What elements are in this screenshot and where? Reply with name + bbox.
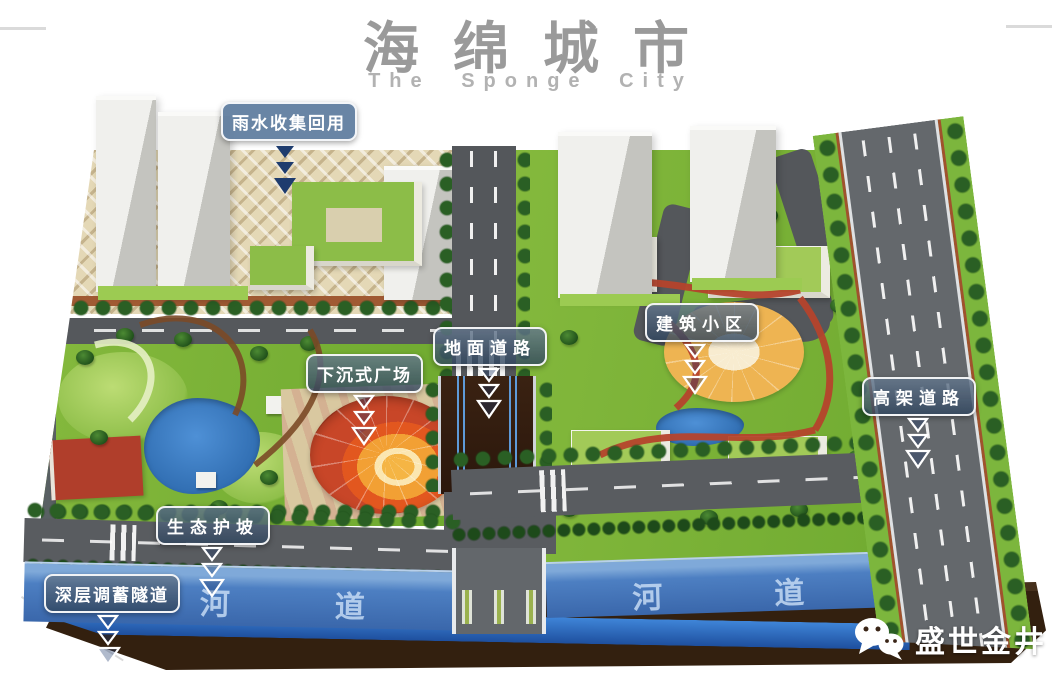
callout-sunken-plaza: 下沉式广场 bbox=[306, 354, 423, 393]
office-tower bbox=[96, 96, 156, 292]
courtyard bbox=[326, 208, 382, 242]
down-arrows-icon bbox=[94, 614, 122, 666]
boundary-road bbox=[28, 318, 468, 344]
callout-label: 建筑小区 bbox=[645, 303, 759, 342]
tree-row bbox=[28, 298, 468, 318]
down-arrows-icon bbox=[198, 546, 226, 598]
tree bbox=[174, 332, 192, 347]
down-arrows-icon bbox=[350, 394, 378, 446]
wechat-icon bbox=[852, 616, 906, 662]
callout-eco-slope: 生态护坡 bbox=[156, 506, 270, 545]
tree bbox=[300, 336, 318, 351]
down-arrows-icon bbox=[904, 417, 932, 469]
street-trees bbox=[424, 380, 438, 492]
park-pavilion bbox=[196, 472, 216, 488]
callout-deep-tunnel: 深层调蓄隧道 bbox=[44, 574, 180, 613]
callout-building-community: 建筑小区 bbox=[645, 303, 759, 342]
callout-label: 深层调蓄隧道 bbox=[44, 574, 180, 613]
callout-label: 生态护坡 bbox=[156, 506, 270, 545]
office-tower bbox=[158, 112, 230, 298]
tree bbox=[250, 346, 268, 361]
callout-label: 高架道路 bbox=[862, 377, 976, 416]
river-bridge bbox=[452, 548, 546, 634]
tree bbox=[260, 470, 278, 485]
down-arrows-icon bbox=[681, 343, 709, 395]
residential-tower bbox=[558, 132, 652, 298]
bridge-pillar bbox=[526, 590, 536, 624]
tree bbox=[116, 328, 134, 343]
park-red-court bbox=[48, 436, 143, 501]
down-arrows-icon bbox=[271, 144, 299, 196]
bridge-pillar bbox=[494, 590, 504, 624]
watermark-label: 盛世金井 bbox=[915, 617, 1047, 661]
callout-ground-road: 地面道路 bbox=[433, 327, 547, 366]
tree bbox=[76, 350, 94, 365]
callout-elevated-road: 高架道路 bbox=[862, 377, 976, 416]
callout-label: 下沉式广场 bbox=[306, 354, 423, 393]
tree bbox=[560, 330, 578, 345]
callout-label: 雨水收集回用 bbox=[221, 102, 357, 141]
callout-label: 地面道路 bbox=[433, 327, 547, 366]
tower-lawn bbox=[692, 278, 802, 290]
watermark: 盛世金井 bbox=[852, 616, 1047, 662]
callout-rainwater-reuse: 雨水收集回用 bbox=[221, 102, 357, 141]
bridge-pillar bbox=[462, 590, 472, 624]
tree bbox=[90, 430, 108, 445]
residential-tower bbox=[690, 126, 776, 282]
page-subtitle: The Sponge City bbox=[0, 70, 1052, 93]
river-label: 河道 bbox=[199, 579, 466, 629]
down-arrows-icon bbox=[475, 367, 503, 419]
green-roof-building bbox=[250, 246, 314, 290]
tower-lawn bbox=[98, 286, 248, 300]
